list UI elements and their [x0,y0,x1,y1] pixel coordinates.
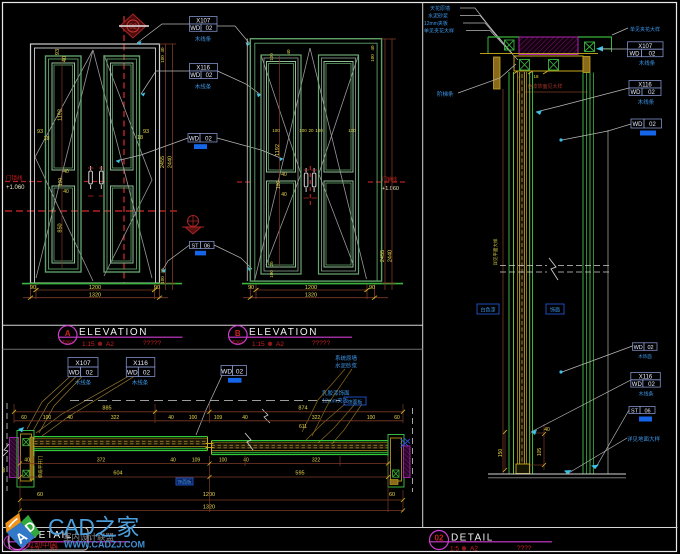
svg-text:X116: X116 [196,66,210,72]
svg-text:02: 02 [649,51,656,57]
svg-text:WD: WD [190,73,201,79]
svg-text:阶梯条: 阶梯条 [437,90,454,98]
svg-text:单见夹花大样: 单见夹花大样 [424,28,454,35]
svg-text:木饰面: 木饰面 [638,353,652,360]
svg-text:WD: WD [633,122,644,128]
svg-text:系统原墙: 系统原墙 [335,354,358,362]
svg-text:885: 885 [102,406,111,412]
svg-text:02: 02 [648,382,655,388]
svg-text:2455: 2455 [160,156,166,168]
svg-text:02: 02 [86,370,94,377]
svg-text:饰面板: 饰面板 [348,398,363,405]
svg-text:40: 40 [242,415,248,421]
svg-text:02: 02 [647,345,653,351]
svg-text:WD: WD [69,370,80,377]
svg-text:1200: 1200 [89,285,101,291]
svg-text:1:15: 1:15 [252,341,265,348]
svg-text:WD: WD [221,369,232,376]
svg-text:1320: 1320 [89,293,101,299]
svg-text:100: 100 [348,128,356,133]
svg-text:X107: X107 [196,19,211,25]
svg-text:40: 40 [63,169,69,175]
svg-text:60: 60 [21,415,27,421]
svg-text:ELEVATION: ELEVATION [79,327,148,338]
svg-text:322: 322 [111,415,120,421]
svg-text:02: 02 [206,26,213,32]
svg-text:40: 40 [286,49,291,55]
svg-text:93: 93 [143,129,149,135]
svg-text:ST: ST [191,243,199,249]
svg-text:WWW.CADZJ.COM: WWW.CADZJ.COM [64,540,145,550]
svg-text:X116: X116 [133,360,148,367]
svg-text:WD: WD [630,51,641,57]
svg-text:ST: ST [631,408,639,414]
svg-text:20: 20 [269,261,274,267]
svg-text:105: 105 [537,448,543,457]
svg-text:2455: 2455 [380,250,386,262]
svg-text:60: 60 [37,492,43,498]
svg-text:60: 60 [1,467,6,473]
svg-text:单见夹花大样: 单见夹花大样 [630,26,660,33]
svg-text:水泥砂浆: 水泥砂浆 [335,362,358,370]
svg-text:100: 100 [160,276,165,284]
svg-text:2440: 2440 [388,250,394,262]
svg-text:木线条: 木线条 [132,379,149,387]
svg-text:02: 02 [143,370,151,377]
svg-text:????: ???? [517,545,532,552]
svg-text:WD: WD [190,26,201,32]
svg-text:100: 100 [370,54,375,62]
svg-text:100: 100 [276,181,282,190]
svg-text:?????: ????? [143,340,161,347]
svg-text:E003: E003 [62,340,73,345]
svg-text:109: 109 [214,415,223,421]
svg-text:WD: WD [127,370,138,377]
svg-text:100: 100 [269,53,274,61]
svg-text:+1.060: +1.060 [382,186,399,192]
svg-text:40: 40 [24,458,30,464]
svg-text:20: 20 [308,128,314,133]
svg-text:93: 93 [55,49,61,55]
svg-text:100: 100 [269,270,274,278]
svg-text:02: 02 [206,73,213,79]
svg-text:40: 40 [281,192,287,198]
svg-text:372: 372 [97,458,106,464]
svg-text:100: 100 [160,55,165,63]
svg-text:60: 60 [389,492,395,498]
svg-text:322: 322 [312,415,321,421]
svg-text:874: 874 [298,406,307,412]
svg-text:CAD之家: CAD之家 [48,514,139,540]
svg-text:详见平面大样: 详见平面大样 [492,238,499,265]
svg-text:门锁线: 门锁线 [6,174,23,182]
svg-text:90: 90 [154,285,160,291]
svg-text:100: 100 [43,415,52,421]
svg-text:12mm夹板: 12mm夹板 [424,20,448,27]
svg-text:02: 02 [435,534,444,543]
svg-text:60: 60 [394,415,400,421]
svg-text:40: 40 [160,47,165,53]
svg-text:木线条: 木线条 [638,98,655,106]
svg-text:322: 322 [312,458,321,464]
svg-text:X116: X116 [639,375,653,381]
svg-text:100: 100 [367,415,376,421]
svg-text:?????: ????? [312,340,330,347]
svg-text:WD: WD [189,136,200,142]
svg-text:100: 100 [189,415,198,421]
svg-text:A: A [65,329,71,338]
svg-text:1200: 1200 [305,285,317,291]
svg-text:40: 40 [62,56,68,62]
svg-text:18: 18 [533,74,539,79]
svg-text:604: 604 [113,471,122,477]
svg-text:40: 40 [370,45,375,51]
svg-text:门锁线: 门锁线 [382,176,397,183]
svg-text:40: 40 [243,458,249,464]
svg-text:2440: 2440 [168,156,174,168]
svg-text:1320: 1320 [305,293,317,299]
svg-text:1320: 1320 [203,505,215,511]
svg-text:40: 40 [170,458,176,464]
svg-text:白色漆: 白色漆 [480,307,495,314]
svg-text:+1.060: +1.060 [6,185,25,191]
svg-text:木线条: 木线条 [639,59,656,67]
svg-text:木线条: 木线条 [195,83,212,91]
svg-text:1192: 1192 [275,144,281,156]
svg-text:40: 40 [281,172,287,178]
svg-text:木线条: 木线条 [195,35,212,43]
svg-text:DETAIL: DETAIL [451,533,494,544]
svg-text:WD: WD [634,345,643,351]
svg-text:1:15: 1:15 [82,341,95,348]
svg-text:红动中国: 红动中国 [27,539,57,549]
svg-text:595: 595 [295,471,304,477]
svg-text:水泥砂浆: 水泥砂浆 [428,13,448,20]
svg-text:40: 40 [544,427,550,433]
svg-text:06: 06 [204,243,210,249]
svg-text:B: B [235,329,241,338]
svg-text:90: 90 [30,285,36,291]
svg-text:X116: X116 [638,83,652,89]
svg-text:90: 90 [248,285,254,291]
svg-text:WD: WD [632,382,643,388]
svg-text:02: 02 [205,136,212,142]
svg-text:1:5: 1:5 [450,546,459,553]
svg-text:02: 02 [236,369,244,376]
svg-text:1192: 1192 [58,109,64,121]
svg-text:饰面板: 饰面板 [177,479,192,486]
svg-text:40: 40 [168,415,174,421]
svg-text:100: 100 [315,128,323,133]
svg-text:100: 100 [58,178,64,187]
svg-text:饰面: 饰面 [550,307,560,314]
svg-text:E003: E003 [233,340,244,345]
svg-text:100: 100 [219,458,228,464]
svg-text:06: 06 [644,408,650,414]
svg-text:02: 02 [129,24,137,31]
svg-text:木线条: 木线条 [75,379,92,387]
svg-text:100: 100 [299,128,307,133]
svg-text:100: 100 [272,128,280,133]
svg-text:A2: A2 [106,341,114,348]
svg-text:X107: X107 [638,44,653,50]
svg-text:WD: WD [631,90,642,96]
svg-text:611: 611 [299,424,307,430]
svg-text:109: 109 [192,458,201,464]
svg-text:18: 18 [137,135,143,141]
svg-text:A2: A2 [276,341,284,348]
svg-text:150: 150 [498,449,504,458]
svg-text:90: 90 [369,285,375,291]
svg-text:1200: 1200 [203,492,215,498]
svg-text:02: 02 [649,122,656,128]
svg-text:93: 93 [37,129,43,135]
svg-text:40: 40 [67,415,73,421]
svg-text:X107: X107 [75,360,91,367]
svg-text:ELEVATION: ELEVATION [249,327,318,338]
svg-text:850: 850 [58,223,64,232]
svg-text:木线条: 木线条 [638,391,653,398]
svg-text:天花原墙: 天花原墙 [430,5,450,12]
svg-text:02: 02 [648,90,655,96]
svg-text:18: 18 [43,136,49,142]
svg-text:A2: A2 [470,546,478,553]
svg-text:详见地面大样: 详见地面大样 [627,435,661,443]
svg-text:40: 40 [63,189,69,195]
svg-text:单扇平开门: 单扇平开门 [37,455,44,478]
